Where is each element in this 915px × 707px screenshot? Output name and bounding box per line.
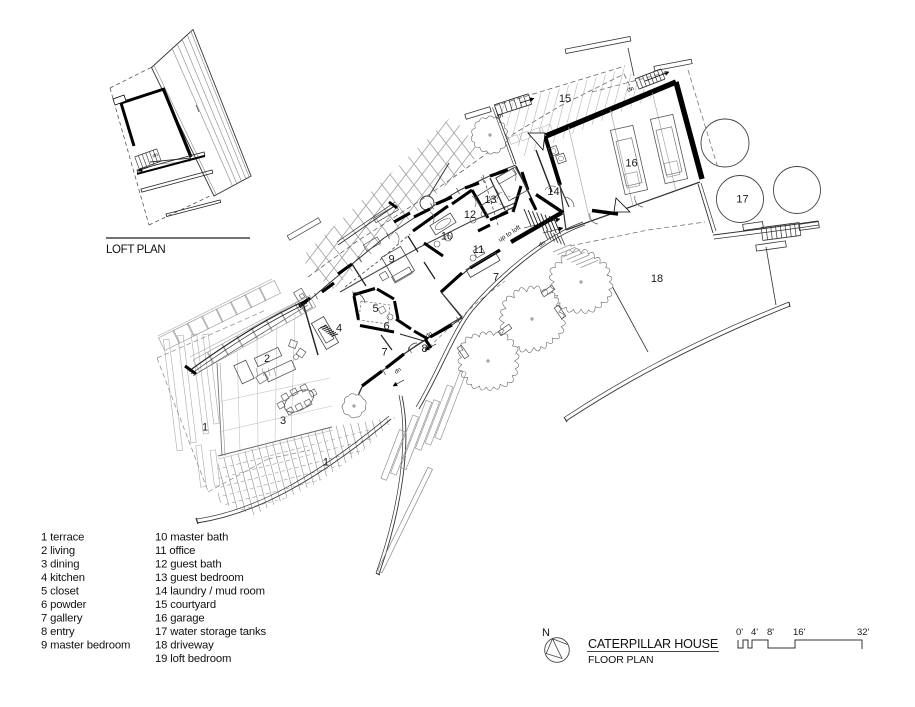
svg-text:12: 12 xyxy=(464,209,476,221)
svg-text:6 powder: 6 powder xyxy=(41,599,87,611)
svg-text:5: 5 xyxy=(372,303,378,315)
svg-text:1: 1 xyxy=(202,422,208,434)
svg-text:10: 10 xyxy=(441,231,453,243)
svg-text:4: 4 xyxy=(336,323,342,335)
svg-text:4': 4' xyxy=(751,627,758,638)
svg-text:8': 8' xyxy=(767,627,774,638)
svg-text:16': 16' xyxy=(793,627,806,638)
svg-text:14 laundry / mud room: 14 laundry / mud room xyxy=(155,586,265,598)
svg-text:32': 32' xyxy=(857,627,870,638)
svg-text:15 courtyard: 15 courtyard xyxy=(155,599,216,611)
svg-text:7: 7 xyxy=(381,347,387,359)
svg-text:7: 7 xyxy=(493,272,499,284)
svg-text:3 dining: 3 dining xyxy=(41,559,79,571)
svg-text:13: 13 xyxy=(484,194,496,206)
svg-text:1: 1 xyxy=(323,457,329,469)
svg-text:11 office: 11 office xyxy=(155,545,195,557)
svg-text:13 guest bedroom: 13 guest bedroom xyxy=(155,572,244,584)
svg-text:5 closet: 5 closet xyxy=(41,586,80,598)
svg-text:6: 6 xyxy=(383,321,389,333)
svg-text:15: 15 xyxy=(559,93,571,105)
svg-text:FLOOR PLAN: FLOOR PLAN xyxy=(588,654,654,666)
svg-text:7 gallery: 7 gallery xyxy=(41,613,83,625)
svg-text:CATERPILLAR HOUSE: CATERPILLAR HOUSE xyxy=(588,637,718,651)
svg-text:19 loft bedroom: 19 loft bedroom xyxy=(155,653,231,665)
svg-text:3: 3 xyxy=(280,415,286,427)
svg-text:18 driveway: 18 driveway xyxy=(155,640,214,652)
svg-text:17 water storage tanks: 17 water storage tanks xyxy=(155,626,266,638)
svg-text:8 entry: 8 entry xyxy=(41,626,75,638)
svg-text:LOFT PLAN: LOFT PLAN xyxy=(106,244,165,256)
svg-text:9: 9 xyxy=(388,254,394,266)
svg-text:16: 16 xyxy=(625,158,637,170)
svg-text:10 master bath: 10 master bath xyxy=(155,532,228,544)
svg-text:N: N xyxy=(542,627,550,639)
svg-text:14: 14 xyxy=(547,186,559,198)
svg-text:17: 17 xyxy=(736,194,748,206)
svg-text:4 kitchen: 4 kitchen xyxy=(41,572,85,584)
svg-text:9 master bedroom: 9 master bedroom xyxy=(41,640,130,652)
svg-text:1 terrace: 1 terrace xyxy=(41,532,84,544)
svg-text:0': 0' xyxy=(736,627,743,638)
svg-text:18: 18 xyxy=(651,273,663,285)
svg-text:11: 11 xyxy=(473,244,484,256)
svg-text:8: 8 xyxy=(421,343,427,355)
svg-text:2 living: 2 living xyxy=(41,545,75,557)
svg-text:16 garage: 16 garage xyxy=(155,613,205,625)
svg-text:2: 2 xyxy=(264,353,270,365)
svg-text:12 guest bath: 12 guest bath xyxy=(155,559,222,571)
